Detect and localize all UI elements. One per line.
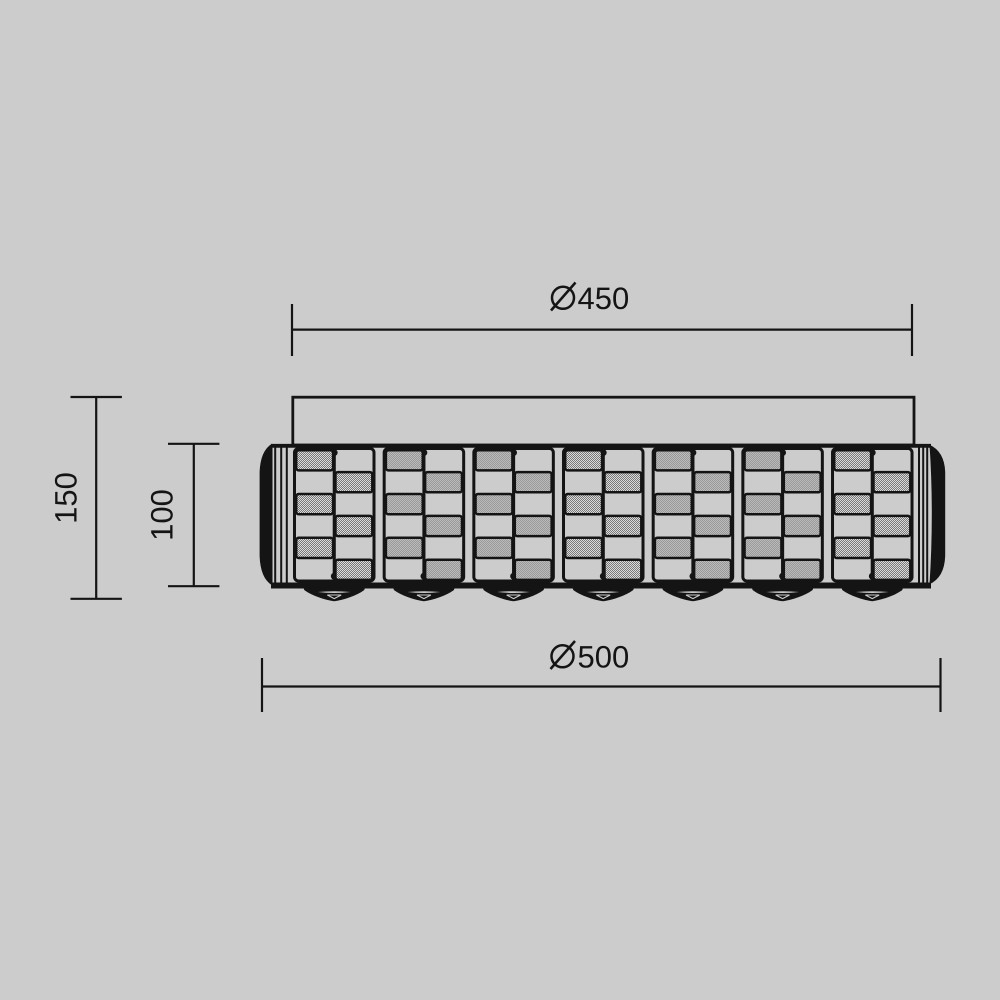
- svg-text:100: 100: [145, 489, 180, 541]
- svg-text:150: 150: [48, 472, 83, 524]
- svg-text:450: 450: [578, 281, 630, 316]
- svg-text:500: 500: [578, 640, 630, 675]
